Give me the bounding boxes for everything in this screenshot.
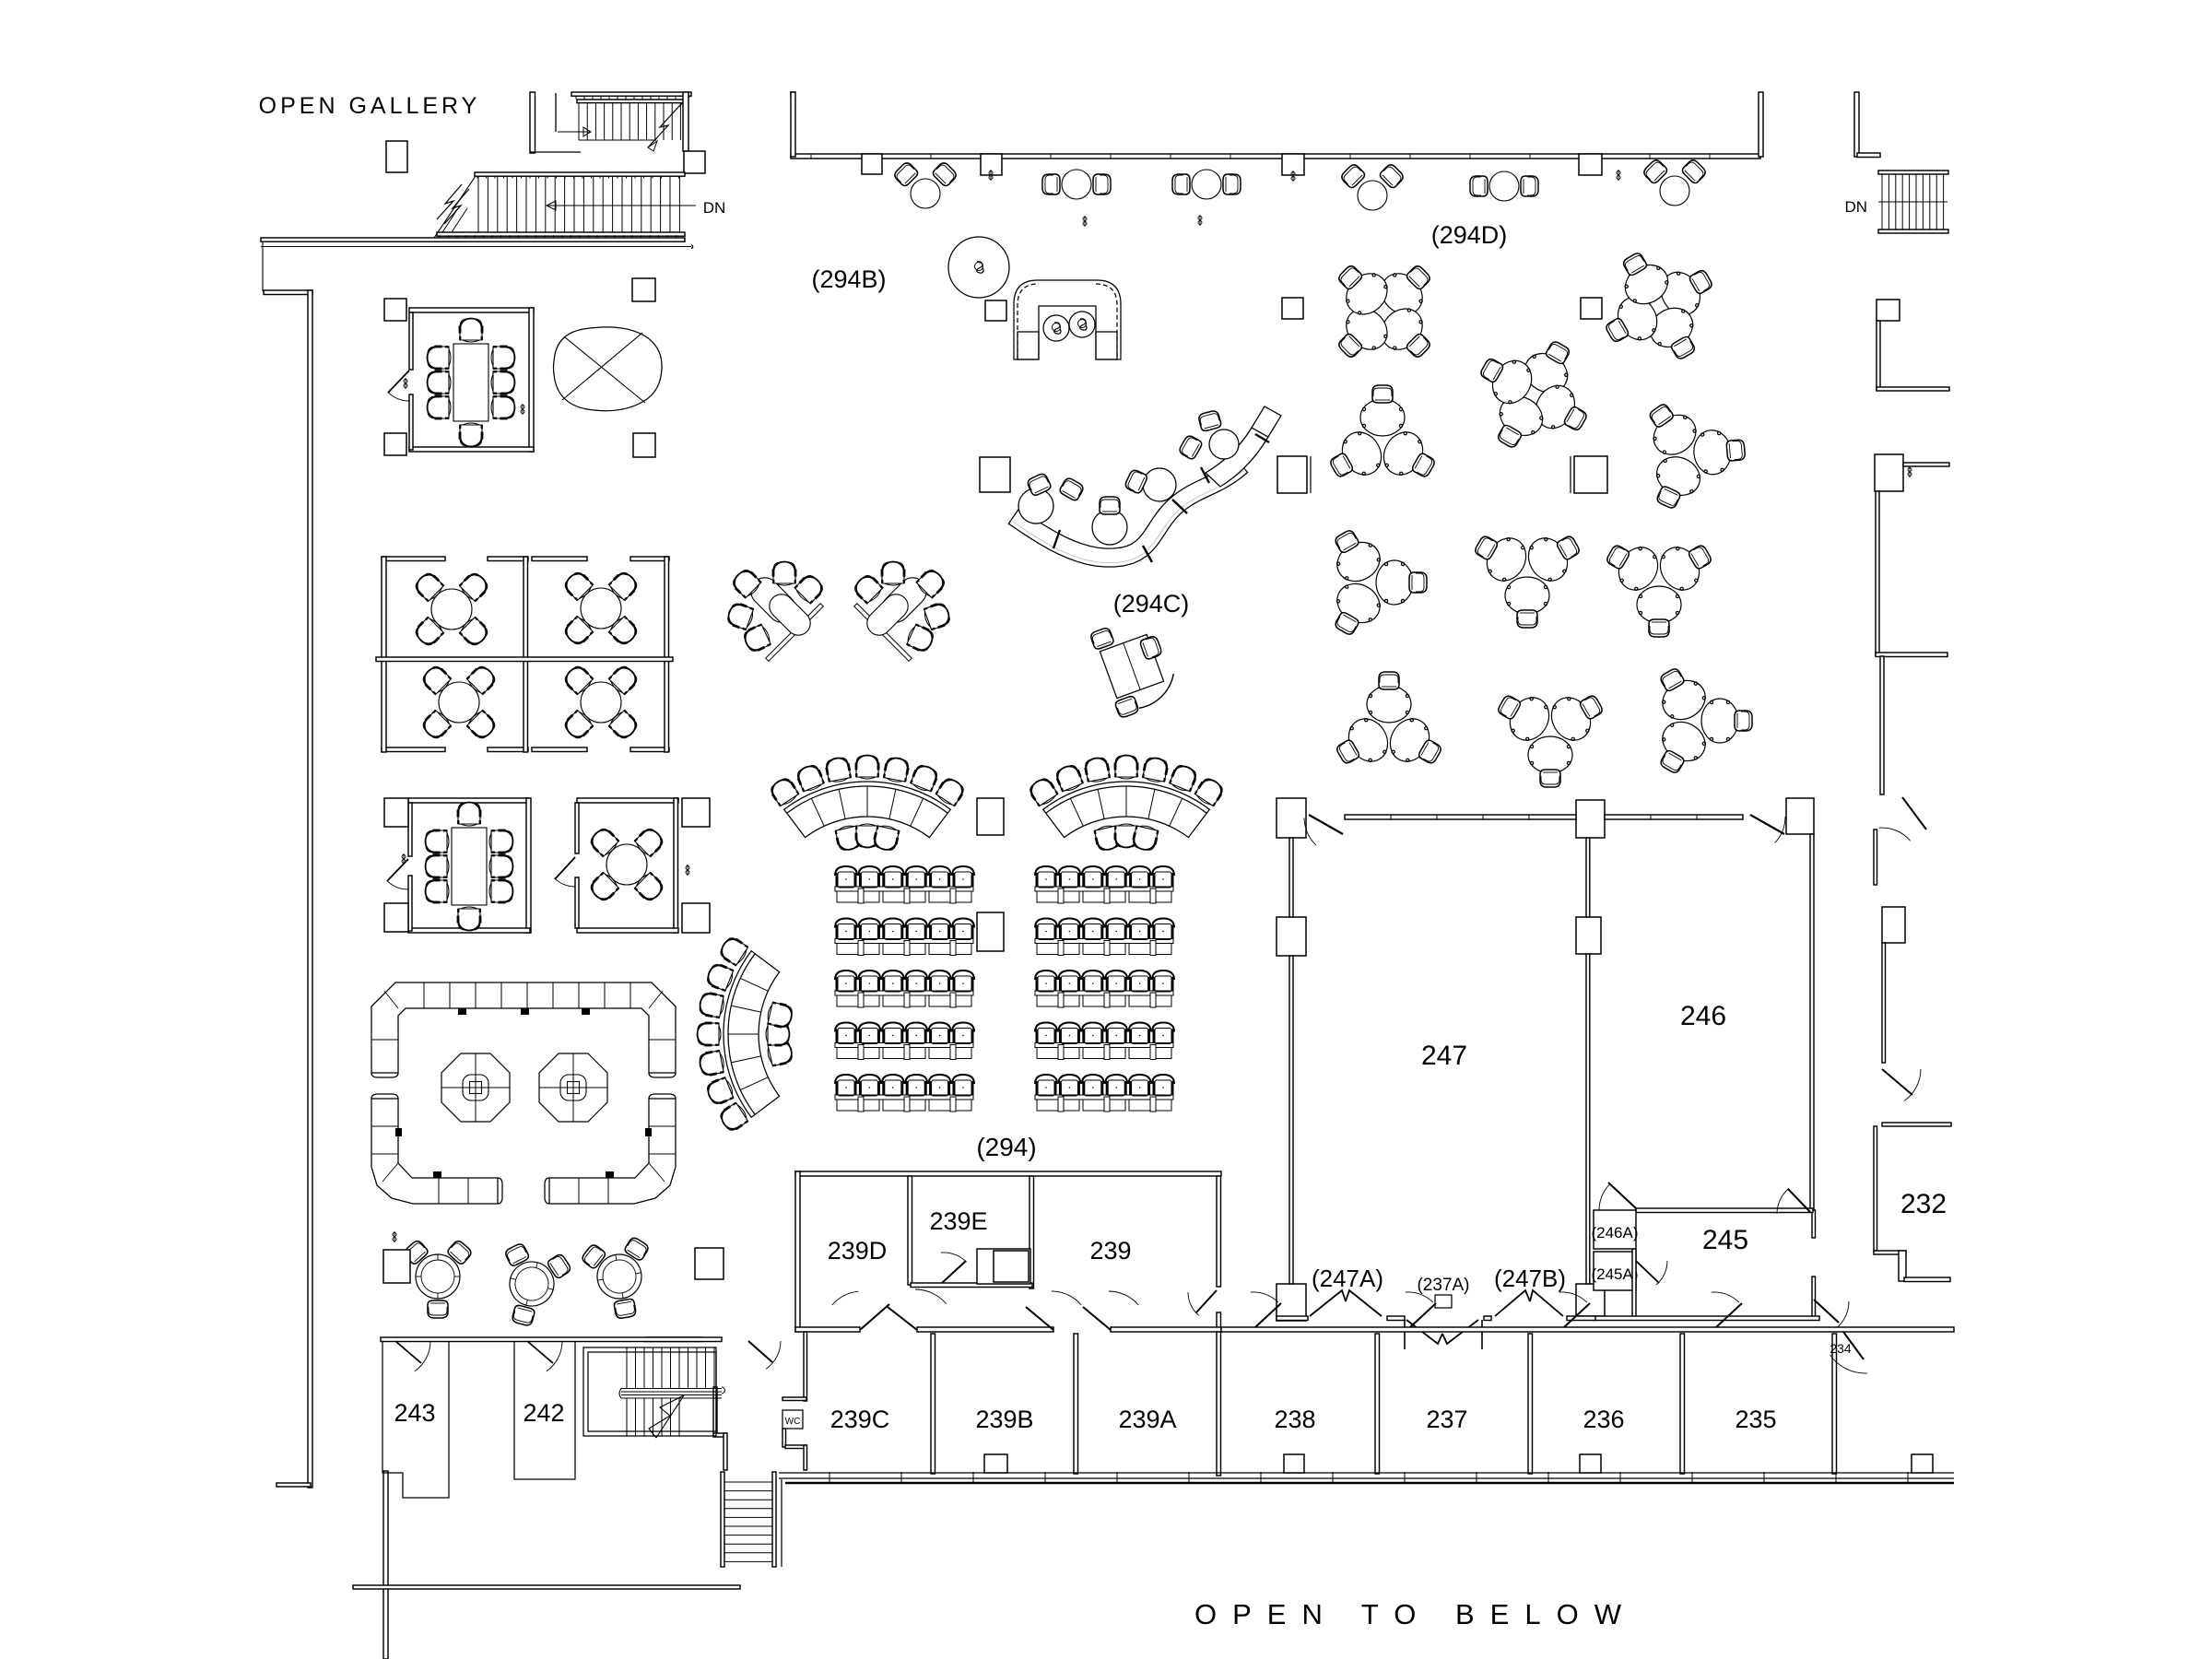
svg-text:247: 247: [1421, 1041, 1467, 1071]
svg-text:237: 237: [1426, 1406, 1467, 1433]
svg-text:WC: WC: [785, 1417, 801, 1427]
svg-text:(294): (294): [976, 1133, 1036, 1161]
svg-text:(294C): (294C): [1113, 590, 1190, 618]
svg-text:OPEN GALLERY: OPEN GALLERY: [259, 93, 481, 119]
svg-text:DN: DN: [1844, 198, 1867, 216]
svg-text:(247A): (247A): [1312, 1265, 1383, 1292]
svg-text:232: 232: [1900, 1189, 1947, 1219]
svg-text:(294D): (294D): [1431, 221, 1508, 249]
svg-text:235: 235: [1735, 1406, 1776, 1433]
svg-text:(294B): (294B): [811, 265, 886, 293]
svg-text:245: 245: [1702, 1225, 1748, 1255]
svg-text:(246A): (246A): [1591, 1224, 1638, 1241]
svg-text:239D: 239D: [828, 1237, 888, 1265]
svg-text:DN: DN: [703, 199, 726, 217]
svg-text:242: 242: [523, 1399, 564, 1427]
svg-text:OPEN TO BELOW: OPEN TO BELOW: [1194, 1598, 1637, 1630]
svg-text:(247B): (247B): [1494, 1265, 1566, 1292]
svg-text:234: 234: [1830, 1341, 1852, 1356]
svg-text:238: 238: [1274, 1406, 1315, 1433]
svg-text:(245A): (245A): [1591, 1265, 1638, 1283]
svg-text:239C: 239C: [830, 1406, 890, 1433]
svg-text:(237A): (237A): [1417, 1276, 1469, 1295]
svg-text:239A: 239A: [1118, 1406, 1176, 1433]
svg-text:239B: 239B: [975, 1406, 1033, 1433]
svg-text:246: 246: [1680, 1001, 1726, 1031]
svg-text:243: 243: [394, 1399, 435, 1427]
svg-text:236: 236: [1583, 1406, 1624, 1433]
svg-text:239E: 239E: [929, 1207, 987, 1235]
svg-text:239: 239: [1089, 1237, 1131, 1265]
